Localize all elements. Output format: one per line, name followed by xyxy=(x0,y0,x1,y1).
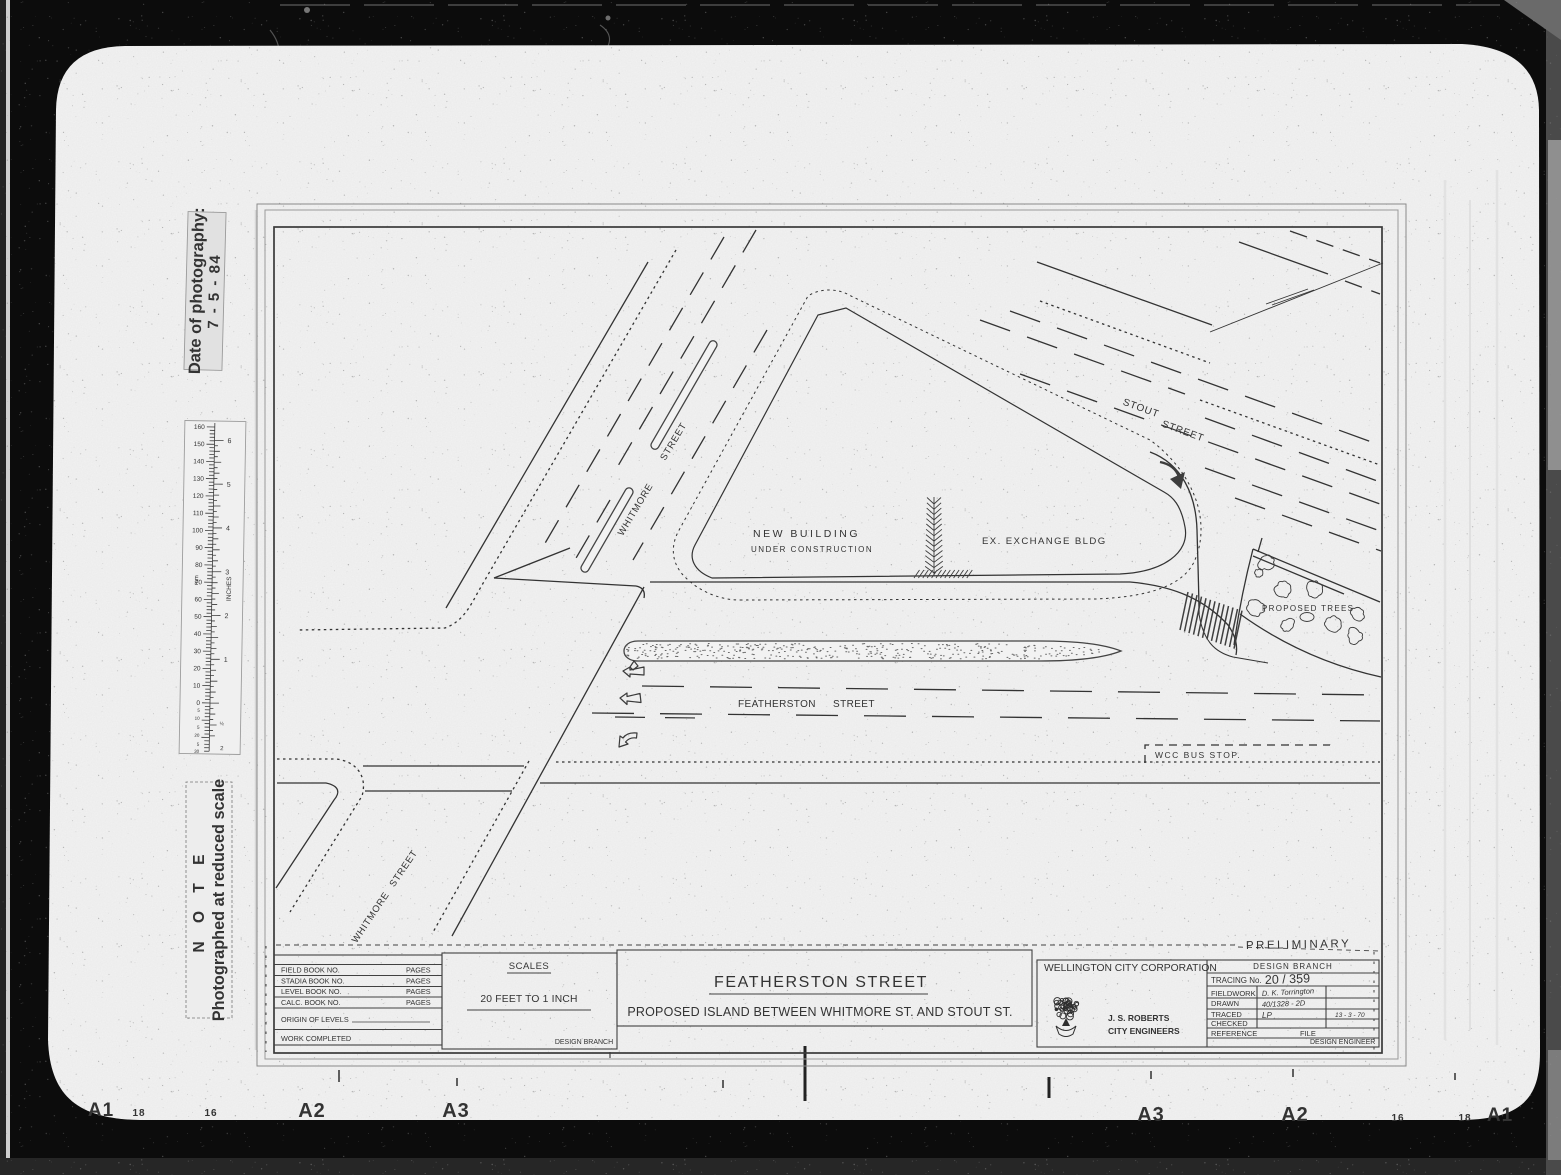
svg-text:WCC BUS STOP.: WCC BUS STOP. xyxy=(1155,750,1241,760)
svg-text:0: 0 xyxy=(196,700,200,707)
svg-text:A2: A2 xyxy=(298,1100,326,1122)
svg-text:100: 100 xyxy=(192,527,203,534)
svg-text:PAGES: PAGES xyxy=(406,998,431,1007)
svg-text:18: 18 xyxy=(132,1108,145,1119)
svg-text:CALC. BOOK NO.: CALC. BOOK NO. xyxy=(281,998,341,1007)
svg-text:A1: A1 xyxy=(88,1100,114,1121)
svg-text:110: 110 xyxy=(193,510,204,517)
svg-text:A3: A3 xyxy=(1137,1104,1165,1126)
svg-text:N O T E: N O T E xyxy=(191,848,208,953)
svg-text:mm: mm xyxy=(194,575,200,585)
svg-text:STREET: STREET xyxy=(833,699,875,710)
svg-text:A3: A3 xyxy=(442,1100,470,1122)
svg-text:INCHES: INCHES xyxy=(226,576,233,601)
svg-text:90: 90 xyxy=(195,545,203,552)
svg-text:40: 40 xyxy=(194,631,202,638)
svg-text:A2: A2 xyxy=(1281,1104,1309,1126)
svg-text:PAGES: PAGES xyxy=(406,966,431,975)
svg-text:LP: LP xyxy=(1262,1011,1272,1020)
svg-text:3: 3 xyxy=(225,569,229,576)
svg-text:REFERENCE: REFERENCE xyxy=(1211,1029,1257,1038)
svg-text:EX. EXCHANGE BLDG: EX. EXCHANGE BLDG xyxy=(982,536,1107,547)
svg-text:1: 1 xyxy=(224,657,228,664)
svg-text:13 - 3 - 70: 13 - 3 - 70 xyxy=(1335,1012,1365,1019)
svg-text:A1: A1 xyxy=(1487,1105,1513,1126)
svg-text:FIELD BOOK NO.: FIELD BOOK NO. xyxy=(281,966,340,975)
svg-text:LEVEL BOOK NO.: LEVEL BOOK NO. xyxy=(281,987,342,996)
svg-text:7 - 5 - 84: 7 - 5 - 84 xyxy=(205,254,224,329)
svg-text:40/1328 - 2D: 40/1328 - 2D xyxy=(1262,998,1306,1009)
svg-text:140: 140 xyxy=(193,458,204,465)
svg-text:6: 6 xyxy=(227,438,231,445)
svg-text:120: 120 xyxy=(193,493,204,500)
svg-text:J. S. ROBERTS: J. S. ROBERTS xyxy=(1108,1013,1170,1023)
svg-text:FEATHERSTON STREET: FEATHERSTON STREET xyxy=(714,974,928,991)
svg-text:30: 30 xyxy=(194,648,202,655)
svg-text:5: 5 xyxy=(227,482,231,489)
svg-text:FILE: FILE xyxy=(1300,1029,1316,1038)
svg-text:CITY ENGINEERS: CITY ENGINEERS xyxy=(1108,1026,1180,1036)
svg-text:PRELIMINARY: PRELIMINARY xyxy=(1246,938,1351,952)
svg-text:Photographed at reduced scale: Photographed at reduced scale xyxy=(210,779,228,1021)
svg-text:2: 2 xyxy=(224,613,228,620)
svg-text:PROPOSED ISLAND BETWEEN WH: PROPOSED ISLAND BETWEEN WHITMORE ST. AND… xyxy=(627,1005,1012,1019)
svg-text:STADIA BOOK NO.: STADIA BOOK NO. xyxy=(281,977,345,986)
svg-text:PROPOSED TREES: PROPOSED TREES xyxy=(1262,604,1354,613)
svg-text:160: 160 xyxy=(194,424,205,431)
svg-text:FIELDWORK: FIELDWORK xyxy=(1211,989,1256,998)
svg-text:4: 4 xyxy=(226,526,230,533)
svg-text:ORIGIN OF LEVELS: ORIGIN OF LEVELS xyxy=(281,1015,349,1024)
svg-text:150: 150 xyxy=(194,441,205,448)
svg-text:50: 50 xyxy=(194,614,202,621)
svg-text:WELLINGTON CITY CORPORATION: WELLINGTON CITY CORPORATION xyxy=(1044,963,1217,974)
svg-text:20 FEET TO 1 INCH: 20 FEET TO 1 INCH xyxy=(480,994,577,1005)
svg-text:TRACED: TRACED xyxy=(1211,1010,1242,1019)
svg-text:18: 18 xyxy=(1458,1113,1471,1124)
svg-text:16: 16 xyxy=(1391,1113,1404,1124)
svg-text:20: 20 xyxy=(193,665,201,672)
svg-text:PAGES: PAGES xyxy=(406,987,431,996)
svg-text:DRAWN: DRAWN xyxy=(1211,999,1239,1008)
svg-text:UNDER CONSTRUCTION: UNDER CONSTRUCTION xyxy=(751,545,873,554)
svg-text:DESIGN ENGINEER: DESIGN ENGINEER xyxy=(1310,1039,1375,1046)
svg-text:DESIGN BRANCH: DESIGN BRANCH xyxy=(555,1039,613,1046)
svg-text:30: 30 xyxy=(194,749,200,754)
svg-text:CHECKED: CHECKED xyxy=(1211,1019,1248,1028)
svg-text:60: 60 xyxy=(194,596,202,603)
svg-text:10: 10 xyxy=(193,683,201,690)
svg-text:130: 130 xyxy=(193,476,204,483)
svg-text:SCALES: SCALES xyxy=(509,961,550,972)
svg-text:FEATHERSTON: FEATHERSTON xyxy=(738,699,816,710)
svg-text:16: 16 xyxy=(204,1108,217,1119)
svg-text:DESIGN BRANCH: DESIGN BRANCH xyxy=(1253,962,1333,971)
svg-text:NEW BUILDING: NEW BUILDING xyxy=(753,528,860,540)
svg-text:WORK COMPLETED: WORK COMPLETED xyxy=(281,1034,351,1043)
svg-text:80: 80 xyxy=(195,562,203,569)
svg-text:TRACING No.: TRACING No. xyxy=(1211,976,1262,985)
svg-text:20 / 359: 20 / 359 xyxy=(1265,971,1311,987)
svg-text:PAGES: PAGES xyxy=(406,977,431,986)
svg-text:10: 10 xyxy=(195,716,201,721)
svg-text:20: 20 xyxy=(194,733,200,738)
